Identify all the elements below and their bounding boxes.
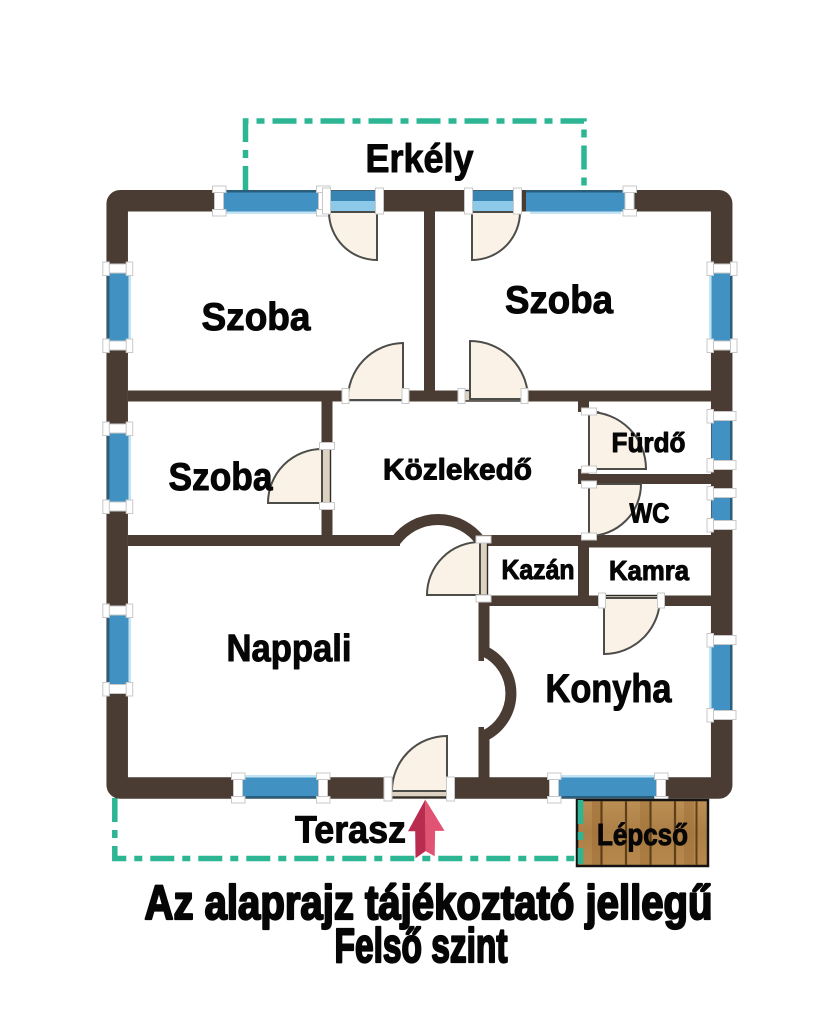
svg-text:Konyha: Konyha <box>546 667 673 711</box>
svg-text:Nappali: Nappali <box>227 628 352 670</box>
svg-text:Lépcső: Lépcső <box>597 817 688 852</box>
svg-text:Kamra: Kamra <box>609 555 689 586</box>
svg-text:Szoba: Szoba <box>169 456 273 499</box>
svg-text:Közlekedő: Közlekedő <box>383 454 532 487</box>
svg-text:Felső szint: Felső szint <box>335 920 508 973</box>
svg-text:Fürdő: Fürdő <box>612 427 686 458</box>
svg-text:Terasz: Terasz <box>295 810 406 852</box>
svg-text:Szoba: Szoba <box>202 296 311 339</box>
svg-text:WC: WC <box>630 498 670 529</box>
svg-text:Erkély: Erkély <box>366 137 475 181</box>
svg-text:Szoba: Szoba <box>505 279 613 322</box>
svg-text:Kazán: Kazán <box>502 554 575 585</box>
